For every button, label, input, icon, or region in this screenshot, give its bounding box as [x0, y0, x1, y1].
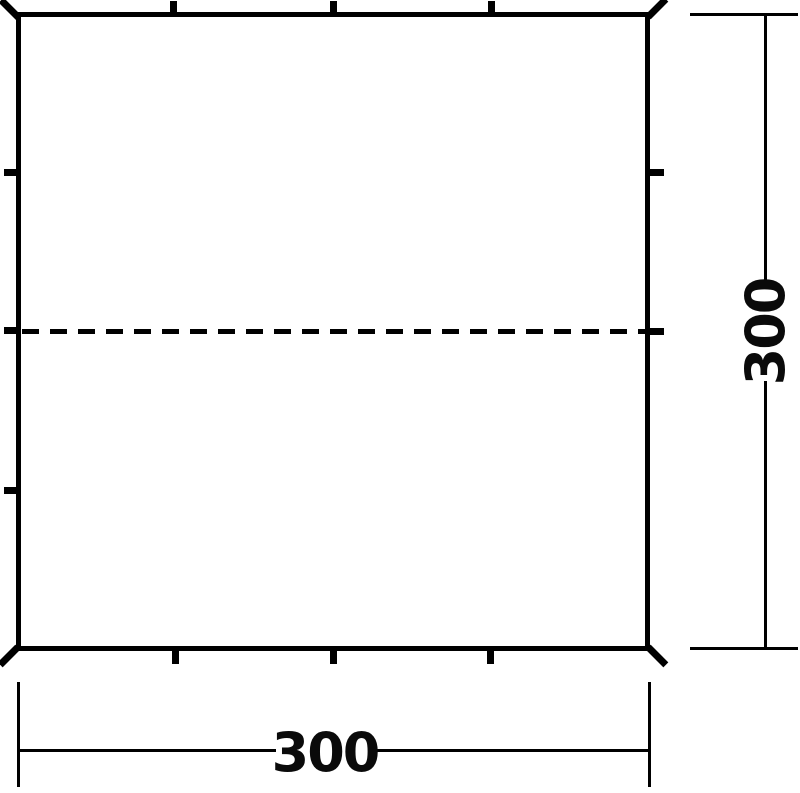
corner-mark-bottom-left — [0, 645, 20, 668]
tick-mark-top-3 — [488, 1, 495, 17]
tick-mark-top-1 — [170, 1, 177, 17]
corner-mark-top-right — [646, 0, 669, 19]
width-dimension-line-left — [18, 749, 276, 752]
tick-mark-bottom-1 — [172, 648, 179, 664]
width-extension-line-left — [17, 682, 20, 787]
width-dimension-label: 300 — [272, 726, 379, 780]
ridge-dashed-line — [22, 329, 648, 334]
tick-mark-left-1 — [4, 169, 20, 176]
tick-mark-right-1 — [648, 169, 664, 176]
tick-mark-right-2 — [648, 328, 664, 335]
width-dimension-line-right — [373, 749, 650, 752]
tick-mark-left-2 — [4, 327, 20, 334]
dimension-diagram: 300 300 — [0, 0, 800, 793]
height-extension-line-top — [690, 13, 798, 16]
height-dimension-label: 300 — [739, 279, 793, 386]
tick-mark-bottom-3 — [487, 648, 494, 664]
height-extension-line-bottom — [690, 647, 798, 650]
tick-mark-top-2 — [330, 1, 337, 17]
tick-mark-bottom-2 — [330, 648, 337, 664]
corner-mark-top-left — [0, 0, 21, 20]
height-dimension-line-upper — [764, 14, 767, 284]
corner-mark-bottom-right — [646, 645, 669, 668]
height-dimension-line-lower — [764, 381, 767, 648]
width-extension-line-right — [648, 682, 651, 787]
tick-mark-left-3 — [4, 487, 20, 494]
